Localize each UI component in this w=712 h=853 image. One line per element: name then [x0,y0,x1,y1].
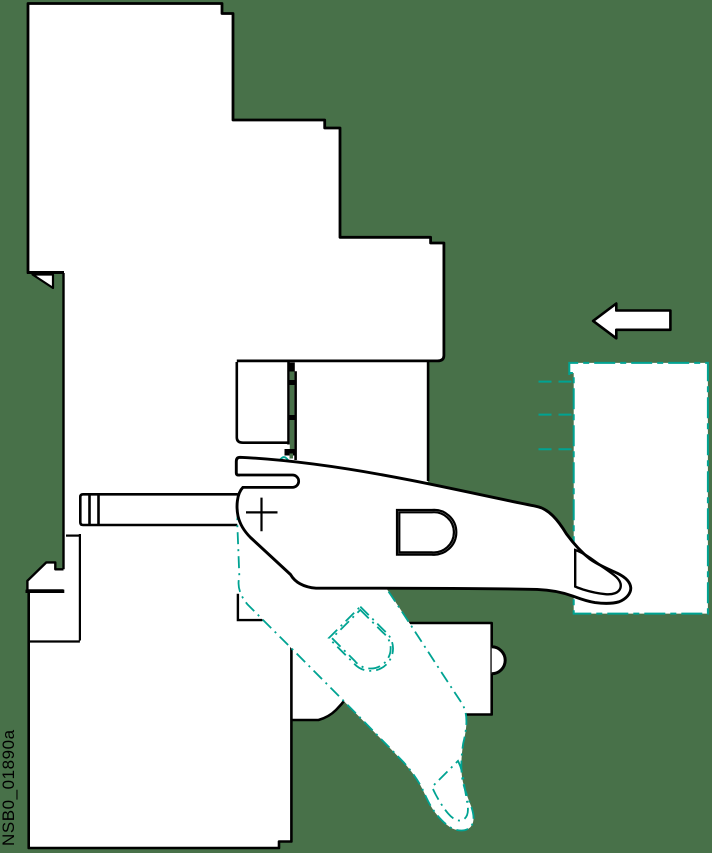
svg-text:NSB0_01890a: NSB0_01890a [0,729,18,846]
